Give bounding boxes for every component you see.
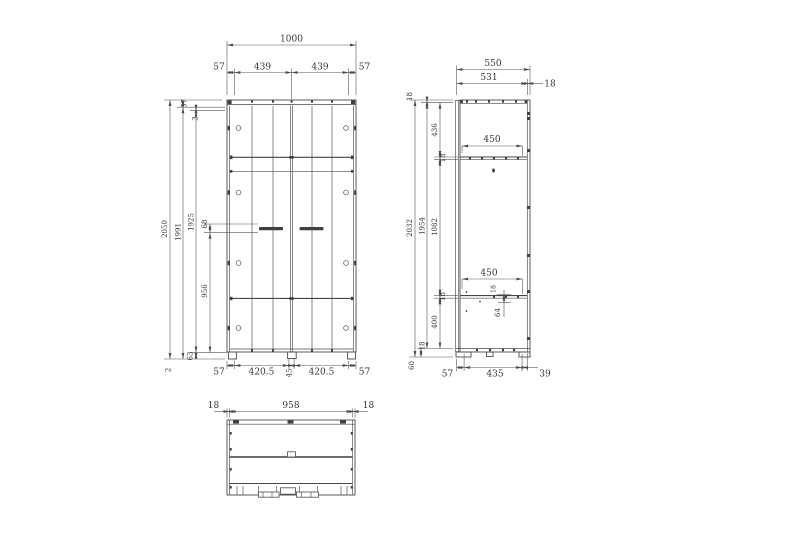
dim-side-back-panel: 18 — [544, 80, 556, 90]
dim-side-seg-436: 436 — [431, 123, 439, 137]
front-cabinet-outline — [227, 100, 356, 352]
plan-shelf-line — [230, 452, 353, 457]
dim-side-depth-total: 550 — [484, 59, 501, 69]
dim-front-width-total: 1000 — [280, 35, 303, 45]
dim-side-rail-18: 18 — [418, 341, 426, 350]
dim-front-height-total: 2050 — [161, 220, 169, 238]
dim-front-handle-68: 68 — [201, 220, 209, 229]
dim-side-height-inner: 1954 — [418, 217, 426, 235]
plan-dimensions: 18 958 18 — [208, 401, 375, 418]
side-view: 550 531 18 2032 18 1954 18 60 — [406, 59, 556, 380]
dim-side-depth-inner: 531 — [480, 73, 497, 83]
dim-plan-inner-958: 958 — [282, 401, 299, 411]
front-doors — [230, 106, 354, 353]
dim-side-bottom-s3: 39 — [539, 370, 551, 380]
technical-drawing: 1000 57 439 439 57 2050 57 1991 3 1925 6… — [0, 0, 800, 533]
dim-plan-right-18: 18 — [363, 401, 375, 411]
dim-front-gap-63: 63 — [187, 352, 195, 361]
dim-front-top-s4: 57 — [359, 63, 371, 73]
dim-front-height-inner: 1991 — [175, 223, 183, 241]
plan-view: 18 958 18 — [208, 401, 375, 497]
dim-front-door-height: 1925 — [188, 213, 196, 231]
dim-front-bottom-s1: 57 — [213, 368, 225, 378]
dim-side-shelf-thickness: 18 — [491, 285, 498, 293]
dim-front-gap-3: 3 — [192, 116, 200, 120]
dim-side-shelf-depth-lower: 450 — [480, 269, 497, 279]
dim-plan-left-18: 18 — [208, 401, 220, 411]
dim-side-seg-1082: 1082 — [431, 218, 439, 236]
dim-front-top-s3: 439 — [311, 63, 328, 73]
drawing-page: 1000 57 439 439 57 2050 57 1991 3 1925 6… — [0, 0, 800, 533]
side-dimensions: 550 531 18 2032 18 1954 18 60 — [406, 59, 556, 380]
front-view: 1000 57 439 439 57 2050 57 1991 3 1925 6… — [161, 35, 370, 378]
dim-side-top-panel: 18 — [406, 92, 414, 101]
dim-front-base-2: 2 — [165, 368, 173, 372]
side-base — [456, 349, 531, 358]
dim-front-bottom-mid: 45 — [285, 369, 293, 378]
dim-side-bottom-s2: 435 — [486, 370, 503, 380]
dim-front-bottom-s2: 420.5 — [249, 368, 275, 378]
dim-front-top-s1: 57 — [213, 63, 225, 73]
dim-side-plinth-60: 60 — [408, 361, 416, 370]
dim-side-hole-64: 64 — [494, 308, 502, 317]
dim-front-top-s2: 439 — [254, 63, 271, 73]
dim-side-shelf-depth-upper: 450 — [483, 135, 500, 145]
front-handles — [259, 227, 324, 230]
dim-side-height-total: 2032 — [406, 219, 414, 237]
front-base — [228, 349, 355, 359]
dim-side-bottom-s1: 57 — [442, 370, 454, 380]
dim-side-seg-400: 400 — [431, 315, 439, 328]
dim-front-bottom-s4: 57 — [359, 368, 371, 378]
front-shelves — [230, 156, 354, 301]
front-dimensions: 1000 57 439 439 57 2050 57 1991 3 1925 6… — [161, 35, 370, 378]
dim-front-lower-956: 956 — [201, 284, 209, 298]
dim-front-top-offset: 57 — [181, 99, 189, 108]
dim-front-bottom-s3: 420.5 — [309, 368, 335, 378]
